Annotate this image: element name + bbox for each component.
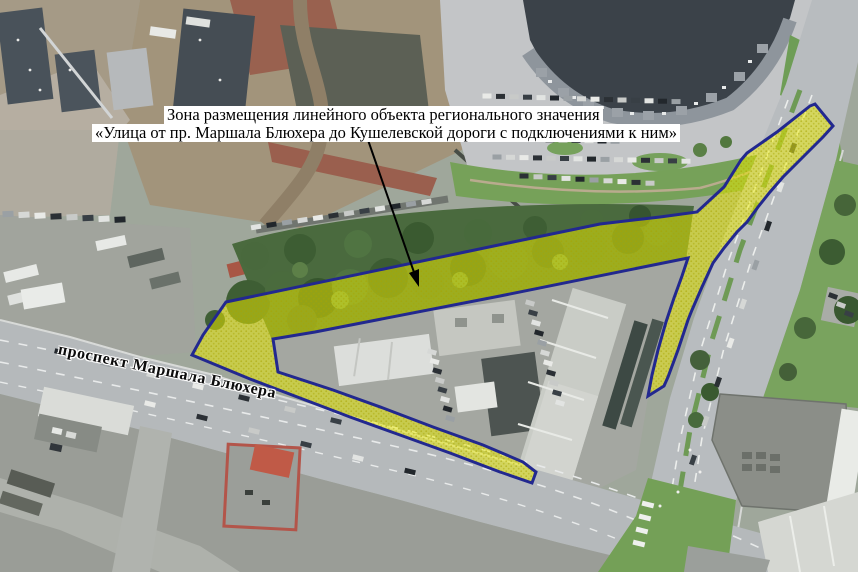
vehicle bbox=[98, 216, 109, 223]
vehicle bbox=[604, 97, 613, 102]
vehicle bbox=[601, 157, 610, 162]
vehicle bbox=[672, 99, 681, 104]
vehicle bbox=[18, 212, 29, 219]
vehicle bbox=[590, 178, 599, 183]
annotation-label-line1: Зона размещения линейного объекта регион… bbox=[164, 106, 603, 124]
substation-part bbox=[756, 464, 766, 471]
vehicle bbox=[493, 155, 502, 160]
vehicle bbox=[682, 159, 691, 164]
vehicle bbox=[114, 216, 125, 223]
rooftop-dots-part bbox=[722, 86, 726, 89]
vehicle bbox=[547, 156, 556, 161]
lawn-posts-part bbox=[699, 471, 702, 474]
rooftop-boxes-part bbox=[558, 88, 569, 97]
vehicle bbox=[645, 98, 654, 103]
rooftop-boxes-part bbox=[676, 106, 687, 115]
vehicle bbox=[631, 98, 640, 103]
trees-part bbox=[284, 234, 316, 266]
vehicle bbox=[2, 211, 13, 218]
vehicle bbox=[618, 179, 627, 184]
lawn-posts-part bbox=[677, 491, 680, 494]
vehicle bbox=[591, 97, 600, 102]
vehicle bbox=[534, 174, 543, 179]
vehicle bbox=[506, 155, 515, 160]
roof-vent bbox=[492, 314, 504, 323]
vehicle bbox=[658, 99, 667, 104]
rooftop-boxes-part bbox=[706, 93, 717, 102]
lawn-posts-part bbox=[689, 449, 692, 452]
vehicle bbox=[520, 155, 529, 160]
vehicle bbox=[66, 214, 77, 221]
trees-part bbox=[464, 219, 492, 247]
annex-white bbox=[454, 382, 497, 413]
construction-site-part bbox=[69, 69, 72, 72]
building-dark bbox=[173, 9, 255, 116]
substation-part bbox=[770, 454, 780, 461]
vehicle bbox=[562, 176, 571, 181]
vehicle bbox=[646, 181, 655, 186]
roof-vent bbox=[455, 318, 467, 327]
building-light bbox=[107, 48, 154, 110]
trees-part bbox=[241, 242, 269, 270]
vehicle bbox=[668, 158, 677, 163]
vehicle bbox=[577, 96, 586, 101]
vehicle bbox=[548, 175, 557, 180]
rooftop-boxes-part bbox=[734, 72, 745, 81]
trees-part bbox=[693, 143, 707, 157]
trees-part bbox=[292, 262, 308, 278]
trees-part bbox=[344, 230, 372, 258]
vehicle bbox=[50, 213, 61, 220]
construction-site-part bbox=[39, 89, 42, 92]
vehicle bbox=[655, 158, 664, 163]
vehicle bbox=[614, 157, 623, 162]
vehicle bbox=[574, 156, 583, 161]
rooftop-boxes-part bbox=[612, 108, 623, 117]
vehicle bbox=[632, 180, 641, 185]
vehicle bbox=[520, 174, 529, 179]
rooftop-boxes-part bbox=[536, 68, 547, 77]
vehicle bbox=[34, 212, 45, 219]
vehicle bbox=[618, 98, 627, 103]
vehicle bbox=[628, 158, 637, 163]
rooftop-boxes-part bbox=[757, 44, 768, 53]
trees-part bbox=[779, 363, 797, 381]
vehicle bbox=[496, 94, 505, 99]
industrial-area-part bbox=[690, 350, 710, 370]
trees-part bbox=[819, 239, 845, 265]
aerial-map-canvas bbox=[0, 0, 858, 572]
industrial-area-part bbox=[688, 412, 704, 428]
construction-site-part bbox=[219, 79, 222, 82]
lawn-posts-part bbox=[659, 505, 662, 508]
rooftop-dots-part bbox=[630, 112, 634, 115]
vehicle bbox=[82, 215, 93, 222]
rooftop-dots-part bbox=[694, 102, 698, 105]
construction-site-part bbox=[17, 39, 20, 42]
annotation-label-line2: «Улица от пр. Маршала Блюхера до Кушелев… bbox=[92, 124, 680, 142]
rooftop-dots-part bbox=[548, 80, 552, 83]
lawn-island bbox=[547, 141, 583, 155]
bottom-left-area-part bbox=[245, 490, 253, 495]
construction-site-part bbox=[199, 39, 202, 42]
vehicle bbox=[587, 157, 596, 162]
vehicle bbox=[560, 156, 569, 161]
building-under-construction bbox=[55, 50, 102, 112]
vehicle bbox=[604, 178, 613, 183]
vehicle bbox=[641, 158, 650, 163]
construction-site-part bbox=[29, 69, 32, 72]
construction-site-part bbox=[0, 130, 120, 218]
vehicle bbox=[550, 96, 559, 101]
vehicle bbox=[533, 155, 542, 160]
bottom-left-area-part bbox=[262, 500, 270, 505]
vehicle bbox=[576, 177, 585, 182]
aerial-map: Зона размещения линейного объекта регион… bbox=[0, 0, 858, 572]
vehicle bbox=[564, 96, 573, 101]
trees-part bbox=[834, 194, 856, 216]
substation-part bbox=[742, 464, 752, 471]
trees-part bbox=[720, 136, 732, 148]
vehicle bbox=[537, 95, 546, 100]
substation-part bbox=[742, 452, 752, 459]
rooftop-dots-part bbox=[662, 112, 666, 115]
vehicle bbox=[483, 94, 492, 99]
rooftop-boxes-part bbox=[643, 111, 654, 120]
rooftop-dots-part bbox=[572, 96, 576, 99]
substation-part bbox=[770, 466, 780, 473]
vehicle bbox=[523, 95, 532, 100]
trees-part bbox=[794, 317, 816, 339]
rooftop-dots-part bbox=[748, 60, 752, 63]
substation-part bbox=[756, 452, 766, 459]
vehicle bbox=[510, 94, 519, 99]
